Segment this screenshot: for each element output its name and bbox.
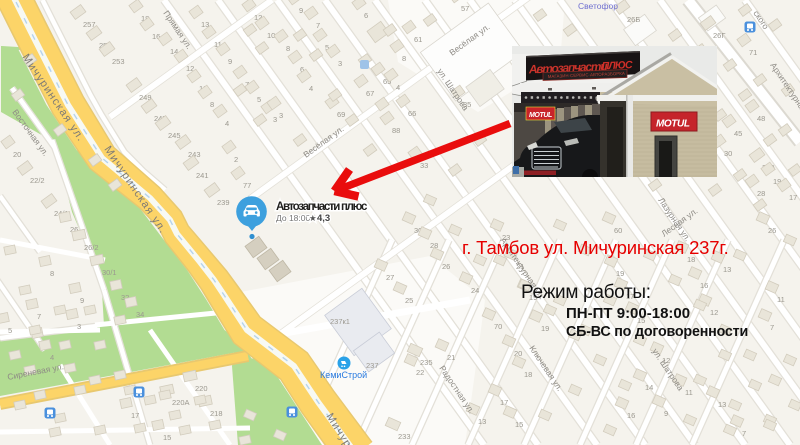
svg-text:26Б: 26Б	[627, 15, 640, 24]
svg-text:11: 11	[685, 388, 693, 397]
svg-text:г. Тамбов ул. Мичуринская 237г: г. Тамбов ул. Мичуринская 237г.	[462, 237, 729, 258]
svg-text:16: 16	[700, 281, 708, 290]
svg-text:СБ-ВС по договоренности: СБ-ВС по договоренности	[566, 324, 748, 340]
svg-text:Светофор: Светофор	[578, 1, 618, 11]
svg-text:220: 220	[195, 384, 208, 393]
svg-text:13: 13	[723, 265, 731, 274]
svg-text:4: 4	[396, 83, 400, 92]
svg-text:3: 3	[338, 59, 342, 68]
svg-text:34: 34	[136, 310, 144, 319]
svg-text:24: 24	[471, 286, 479, 295]
svg-text:5: 5	[8, 326, 12, 335]
svg-text:4,3: 4,3	[317, 213, 330, 224]
svg-text:19: 19	[541, 324, 549, 333]
svg-text:69: 69	[337, 110, 345, 119]
svg-text:28: 28	[757, 189, 765, 198]
svg-text:235: 235	[420, 358, 433, 367]
svg-text:18: 18	[524, 370, 532, 379]
svg-text:15: 15	[163, 433, 171, 442]
svg-text:48: 48	[757, 114, 765, 123]
svg-text:27: 27	[386, 273, 394, 282]
svg-text:88: 88	[392, 126, 400, 135]
svg-text:9: 9	[80, 296, 84, 305]
svg-text:17: 17	[789, 193, 797, 202]
svg-text:26: 26	[442, 262, 450, 271]
svg-text:26/2: 26/2	[84, 243, 99, 252]
svg-text:7: 7	[316, 21, 320, 30]
svg-text:9: 9	[228, 57, 232, 66]
svg-text:19: 19	[616, 269, 624, 278]
svg-text:8: 8	[210, 100, 214, 109]
svg-text:6: 6	[364, 11, 368, 20]
svg-text:3: 3	[279, 111, 283, 120]
svg-text:239: 239	[217, 198, 230, 207]
svg-text:8: 8	[402, 54, 406, 63]
svg-text:2: 2	[234, 155, 238, 164]
svg-text:7: 7	[742, 429, 746, 438]
svg-text:45: 45	[734, 129, 742, 138]
svg-text:61: 61	[414, 35, 422, 44]
svg-text:237к1: 237к1	[330, 317, 350, 326]
svg-text:ПН-ПТ 9:00-18:00: ПН-ПТ 9:00-18:00	[566, 305, 690, 322]
svg-text:8: 8	[286, 44, 290, 53]
svg-text:237: 237	[366, 361, 379, 370]
svg-text:60: 60	[614, 226, 622, 235]
svg-text:26: 26	[768, 226, 776, 235]
svg-text:До 18:00: До 18:00	[276, 213, 310, 223]
svg-text:26Г: 26Г	[713, 31, 725, 40]
svg-text:22/2: 22/2	[30, 176, 45, 185]
svg-text:13: 13	[478, 417, 486, 426]
svg-text:70: 70	[494, 322, 502, 331]
svg-text:66: 66	[408, 109, 416, 118]
svg-text:30/1: 30/1	[102, 268, 117, 277]
svg-text:22: 22	[416, 368, 424, 377]
svg-text:14: 14	[645, 383, 653, 392]
svg-text:77: 77	[243, 181, 251, 190]
svg-text:★: ★	[309, 213, 317, 223]
svg-text:3: 3	[273, 115, 277, 124]
svg-text:57: 57	[461, 4, 469, 13]
svg-text:4: 4	[50, 353, 54, 362]
svg-text:7: 7	[37, 312, 41, 321]
svg-text:4: 4	[309, 84, 313, 93]
svg-text:15: 15	[515, 420, 523, 429]
svg-text:21: 21	[447, 353, 455, 362]
svg-text:220А: 220А	[172, 398, 190, 407]
svg-text:253: 253	[112, 57, 125, 66]
svg-text:12: 12	[710, 308, 718, 317]
svg-text:233: 233	[398, 432, 411, 441]
svg-text:33: 33	[420, 161, 428, 170]
svg-text:3: 3	[77, 322, 81, 331]
svg-text:20: 20	[13, 150, 21, 159]
svg-text:4: 4	[225, 119, 229, 128]
svg-text:241: 241	[196, 171, 209, 180]
svg-text:25: 25	[405, 296, 413, 305]
svg-text:30: 30	[724, 149, 732, 158]
svg-text:9: 9	[664, 409, 668, 418]
svg-text:245: 245	[168, 131, 181, 140]
svg-text:67: 67	[366, 89, 374, 98]
svg-text:Режим работы:: Режим работы:	[521, 282, 651, 303]
svg-text:13: 13	[718, 400, 726, 409]
svg-text:218: 218	[210, 409, 223, 418]
svg-text:MOTUL: MOTUL	[529, 112, 552, 119]
svg-text:11: 11	[777, 295, 785, 304]
svg-text:16: 16	[627, 411, 635, 420]
svg-text:КемиСтрой: КемиСтрой	[320, 370, 367, 380]
svg-text:5: 5	[257, 95, 261, 104]
svg-text:9: 9	[299, 6, 303, 15]
svg-text:17: 17	[131, 411, 139, 420]
svg-text:8: 8	[50, 269, 54, 278]
svg-text:7: 7	[770, 323, 774, 332]
svg-text:MOTUL: MOTUL	[656, 119, 690, 130]
svg-text:71: 71	[749, 48, 757, 57]
svg-text:Автозапчасти плюс: Автозапчасти плюс	[276, 201, 368, 213]
